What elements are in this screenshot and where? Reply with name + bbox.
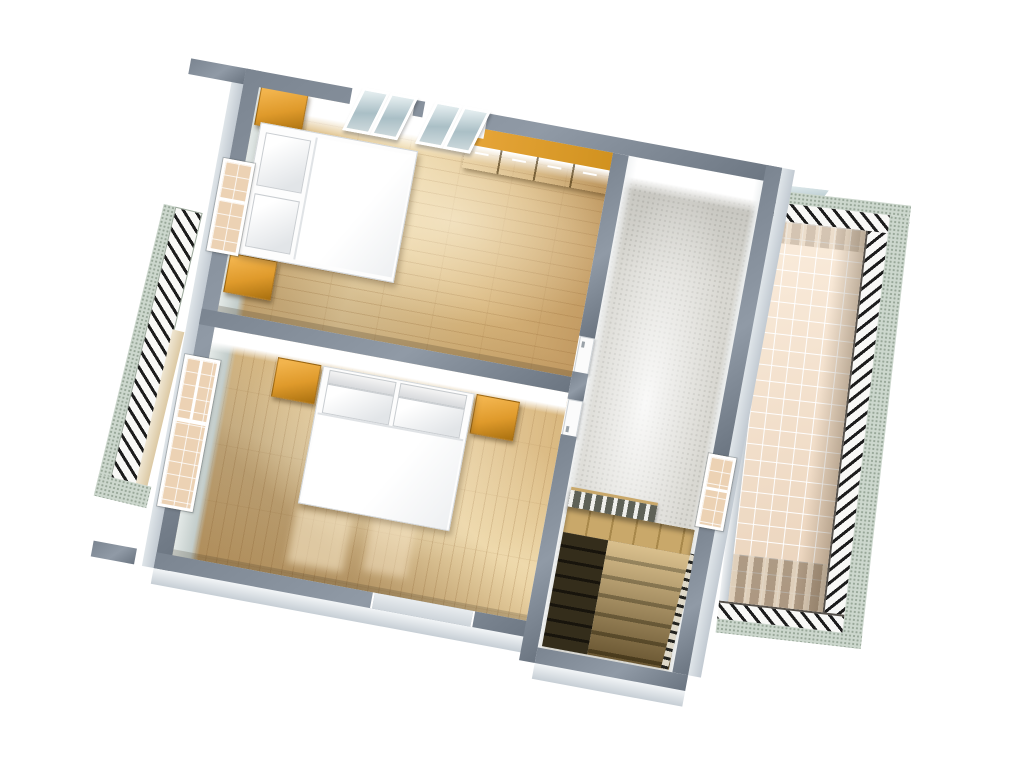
top-wall-overhang (188, 58, 246, 84)
bedroom2-nightstand-left (271, 357, 322, 404)
window-divider (705, 486, 727, 493)
building-group (126, 57, 818, 717)
door-handle (581, 341, 585, 347)
bottom-wall-overhang (91, 541, 137, 565)
bed-pillow (245, 193, 300, 254)
bedroom1-double-bed (236, 122, 418, 283)
bedroom2-double-bed (298, 366, 475, 532)
door-handle (565, 426, 569, 432)
window-divider (189, 360, 203, 420)
bedroom2-window-light-patch (287, 507, 352, 572)
bed-duvet (293, 137, 414, 277)
window-divider (219, 197, 245, 205)
floorplan-render (0, 0, 1024, 768)
bedroom2-nightstand-right (470, 394, 521, 441)
bed-pillow (256, 132, 311, 193)
